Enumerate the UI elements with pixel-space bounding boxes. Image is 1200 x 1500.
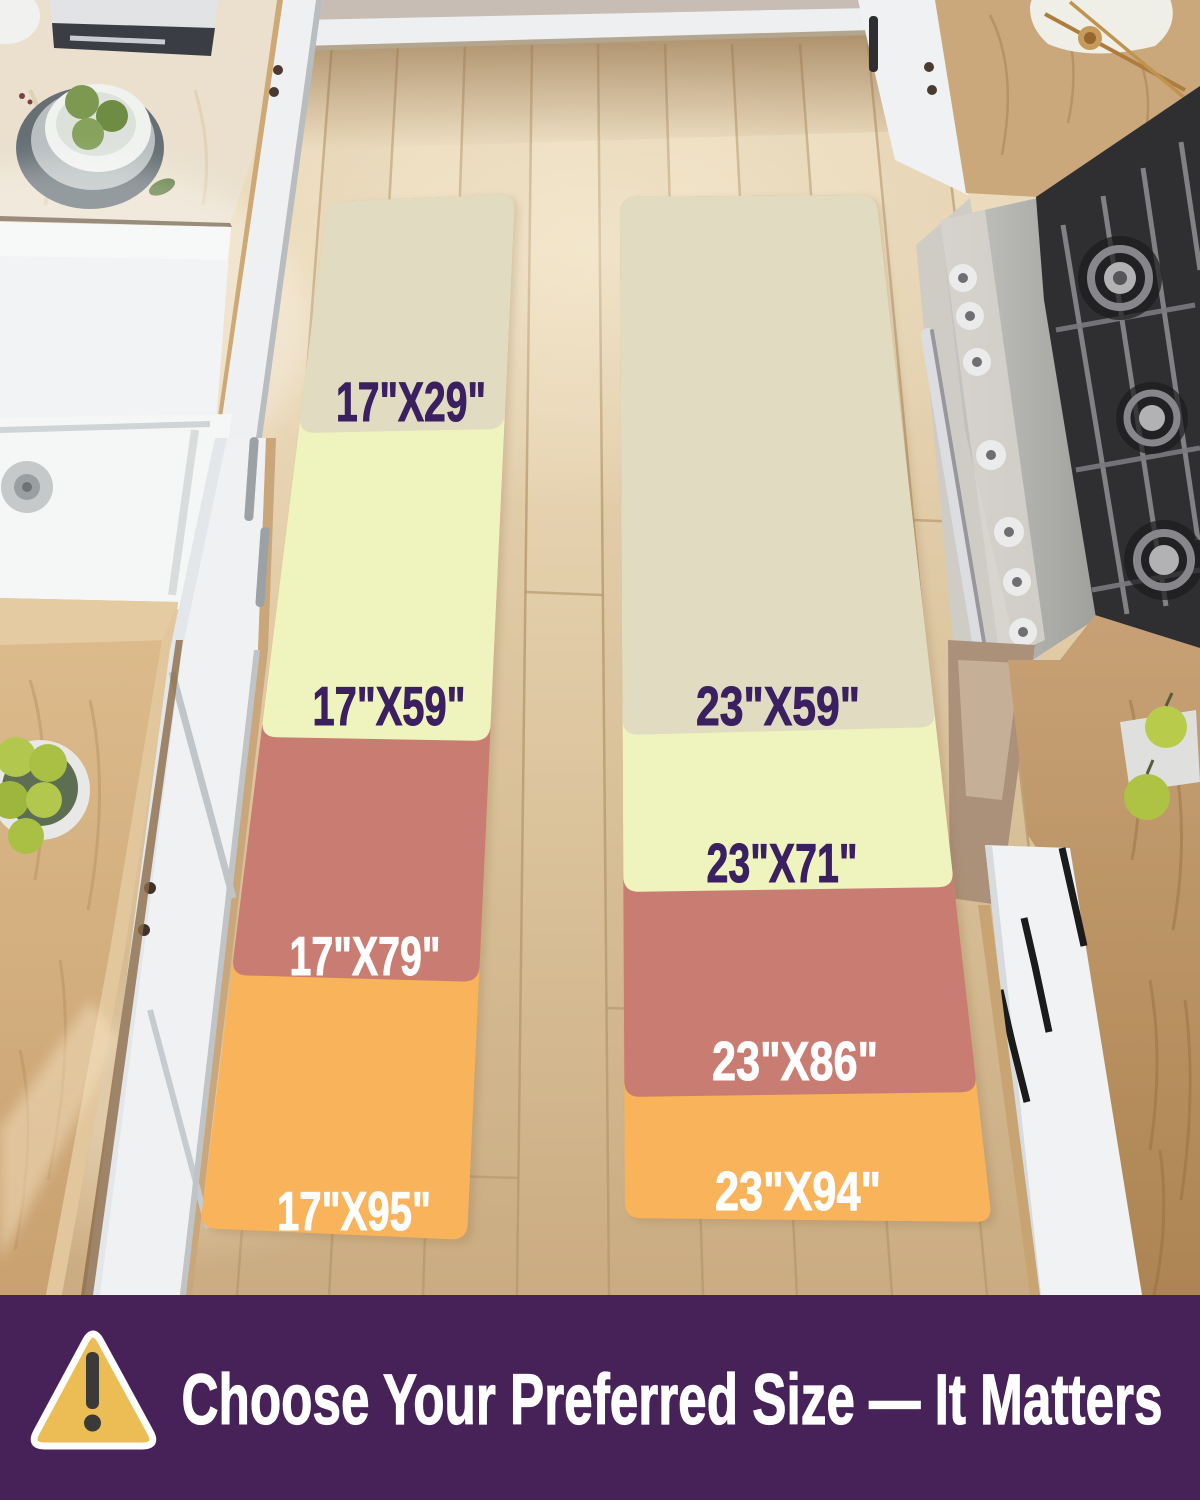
svg-text:Choose Your Preferred Size — I: Choose Your Preferred Size — It Matters	[182, 1361, 1163, 1440]
svg-text:17"X29": 17"X29"	[336, 370, 486, 433]
svg-text:23"X59": 23"X59"	[696, 675, 860, 737]
svg-text:17"X79": 17"X79"	[290, 925, 441, 987]
svg-text:23"X94": 23"X94"	[715, 1160, 881, 1222]
svg-text:17"X59": 17"X59"	[313, 675, 466, 737]
svg-text:17"X95": 17"X95"	[277, 1180, 431, 1242]
svg-text:23"X71": 23"X71"	[707, 832, 858, 894]
svg-text:23"X86": 23"X86"	[712, 1030, 878, 1092]
